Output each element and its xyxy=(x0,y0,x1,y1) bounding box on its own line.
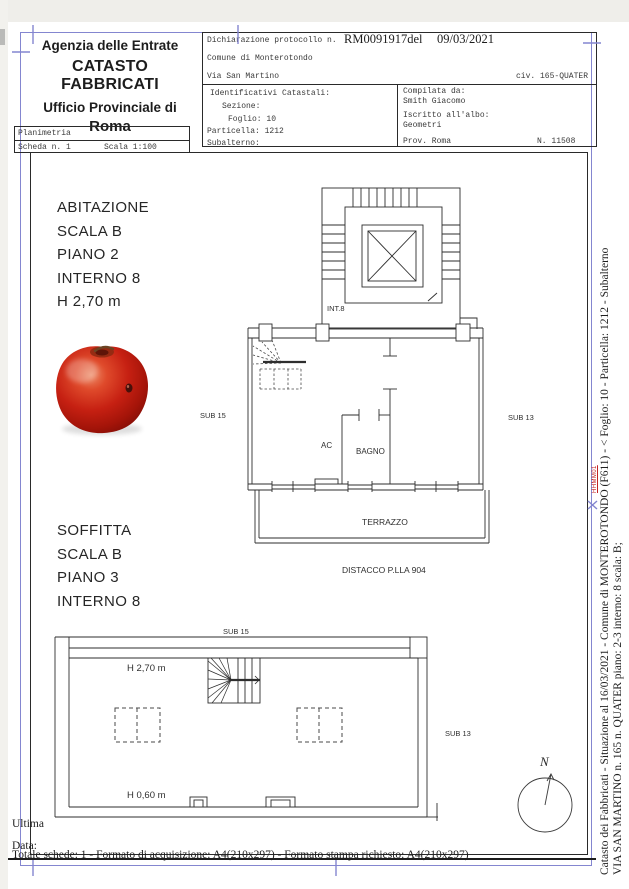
sub15-label-main: SUB 15 xyxy=(200,412,226,420)
sidebar-line2: VIA SAN MARTINO n. 165 n. QUATER piano: … xyxy=(612,175,625,875)
floor-plan-linework xyxy=(0,0,629,889)
apartment-plan xyxy=(248,324,483,492)
footer-ultima: Ultima xyxy=(12,818,44,830)
attic-stair xyxy=(208,658,260,703)
compass-north-label: N xyxy=(540,755,549,768)
sub15-label-attic: SUB 15 xyxy=(223,628,249,636)
registration-ticks xyxy=(12,25,601,876)
planimetria-document: Agenzia delle Entrate CATASTO FABBRICATI… xyxy=(0,0,629,889)
sidebar-rotated-text: Catasto dei Fabbricati - Situazione al 1… xyxy=(599,175,625,875)
stair-treads-right xyxy=(442,225,460,279)
terrazzo-label: TERRAZZO xyxy=(362,518,408,527)
stairwell-plan xyxy=(322,188,477,329)
compass-rose xyxy=(518,774,572,832)
apartment-windows xyxy=(272,481,458,492)
int8-label: INT.8 xyxy=(327,305,345,313)
stair-treads-top xyxy=(353,188,417,207)
ac-label: AC xyxy=(321,442,332,450)
height-bottom-label: H 0,60 m xyxy=(127,791,166,801)
attic-dashed-openings xyxy=(115,708,342,742)
attic-plan xyxy=(55,637,438,821)
footer-rule xyxy=(8,858,596,860)
overhead-stair-dashed xyxy=(253,340,301,389)
sub13-label-attic: SUB 13 xyxy=(445,730,471,738)
apple-image xyxy=(56,346,148,435)
sidebar-line1: Catasto dei Fabbricati - Situazione al 1… xyxy=(599,175,612,875)
red-stamp-text: HHMM01 xyxy=(592,465,598,493)
bagno-label: BAGNO xyxy=(356,448,385,456)
stair-treads-left xyxy=(322,225,345,279)
sub13-label-main: SUB 13 xyxy=(508,414,534,422)
distacco-label: DISTACCO P.LLA 904 xyxy=(342,566,426,575)
height-top-label: H 2,70 m xyxy=(127,664,166,674)
